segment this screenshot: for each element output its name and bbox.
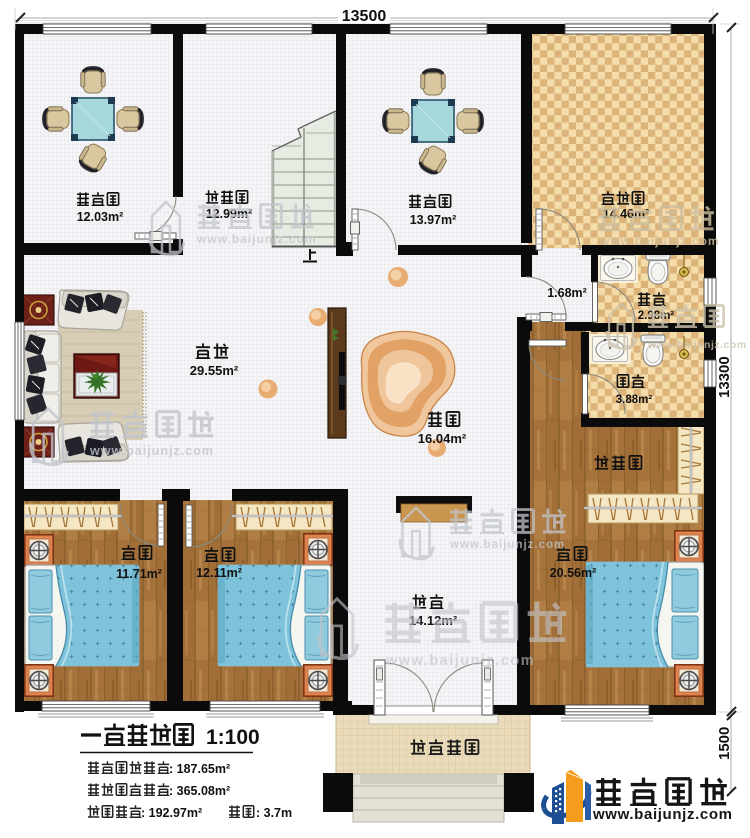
svg-text:: 365.08m²: : 365.08m² xyxy=(169,784,230,798)
svg-text:16.04m²: 16.04m² xyxy=(418,431,467,446)
svg-text:www.baijunjz.com: www.baijunjz.com xyxy=(647,339,747,351)
svg-text:1.68m²: 1.68m² xyxy=(547,286,587,300)
svg-text:: 187.65m²: : 187.65m² xyxy=(169,762,230,776)
svg-text:29.55m²: 29.55m² xyxy=(190,363,239,378)
svg-text:11.71m²: 11.71m² xyxy=(116,567,162,581)
svg-text:1500: 1500 xyxy=(716,727,733,760)
svg-text:www.baijunjz.com: www.baijunjz.com xyxy=(592,806,732,823)
svg-text:www.baijunjz.com: www.baijunjz.com xyxy=(449,539,565,551)
svg-text:: 3.7m: : 3.7m xyxy=(256,806,292,820)
svg-text:13300: 13300 xyxy=(716,356,733,398)
svg-text:12.11m²: 12.11m² xyxy=(196,566,242,580)
svg-text:: 192.97m²: : 192.97m² xyxy=(141,806,202,820)
svg-text:12.03m²: 12.03m² xyxy=(77,210,124,224)
svg-text:1:100: 1:100 xyxy=(206,726,260,749)
svg-text:3.88m²: 3.88m² xyxy=(616,394,653,406)
svg-text:20.56m²: 20.56m² xyxy=(550,566,597,580)
svg-text:www.baijunjz.com: www.baijunjz.com xyxy=(599,234,720,248)
svg-text:www.baijunjz.com: www.baijunjz.com xyxy=(385,653,535,669)
svg-text:www.baijunjz.com: www.baijunjz.com xyxy=(89,444,214,458)
svg-text:www.baijunjz.com: www.baijunjz.com xyxy=(196,232,317,246)
svg-text:13.97m²: 13.97m² xyxy=(410,213,457,227)
svg-text:13500: 13500 xyxy=(342,8,387,25)
